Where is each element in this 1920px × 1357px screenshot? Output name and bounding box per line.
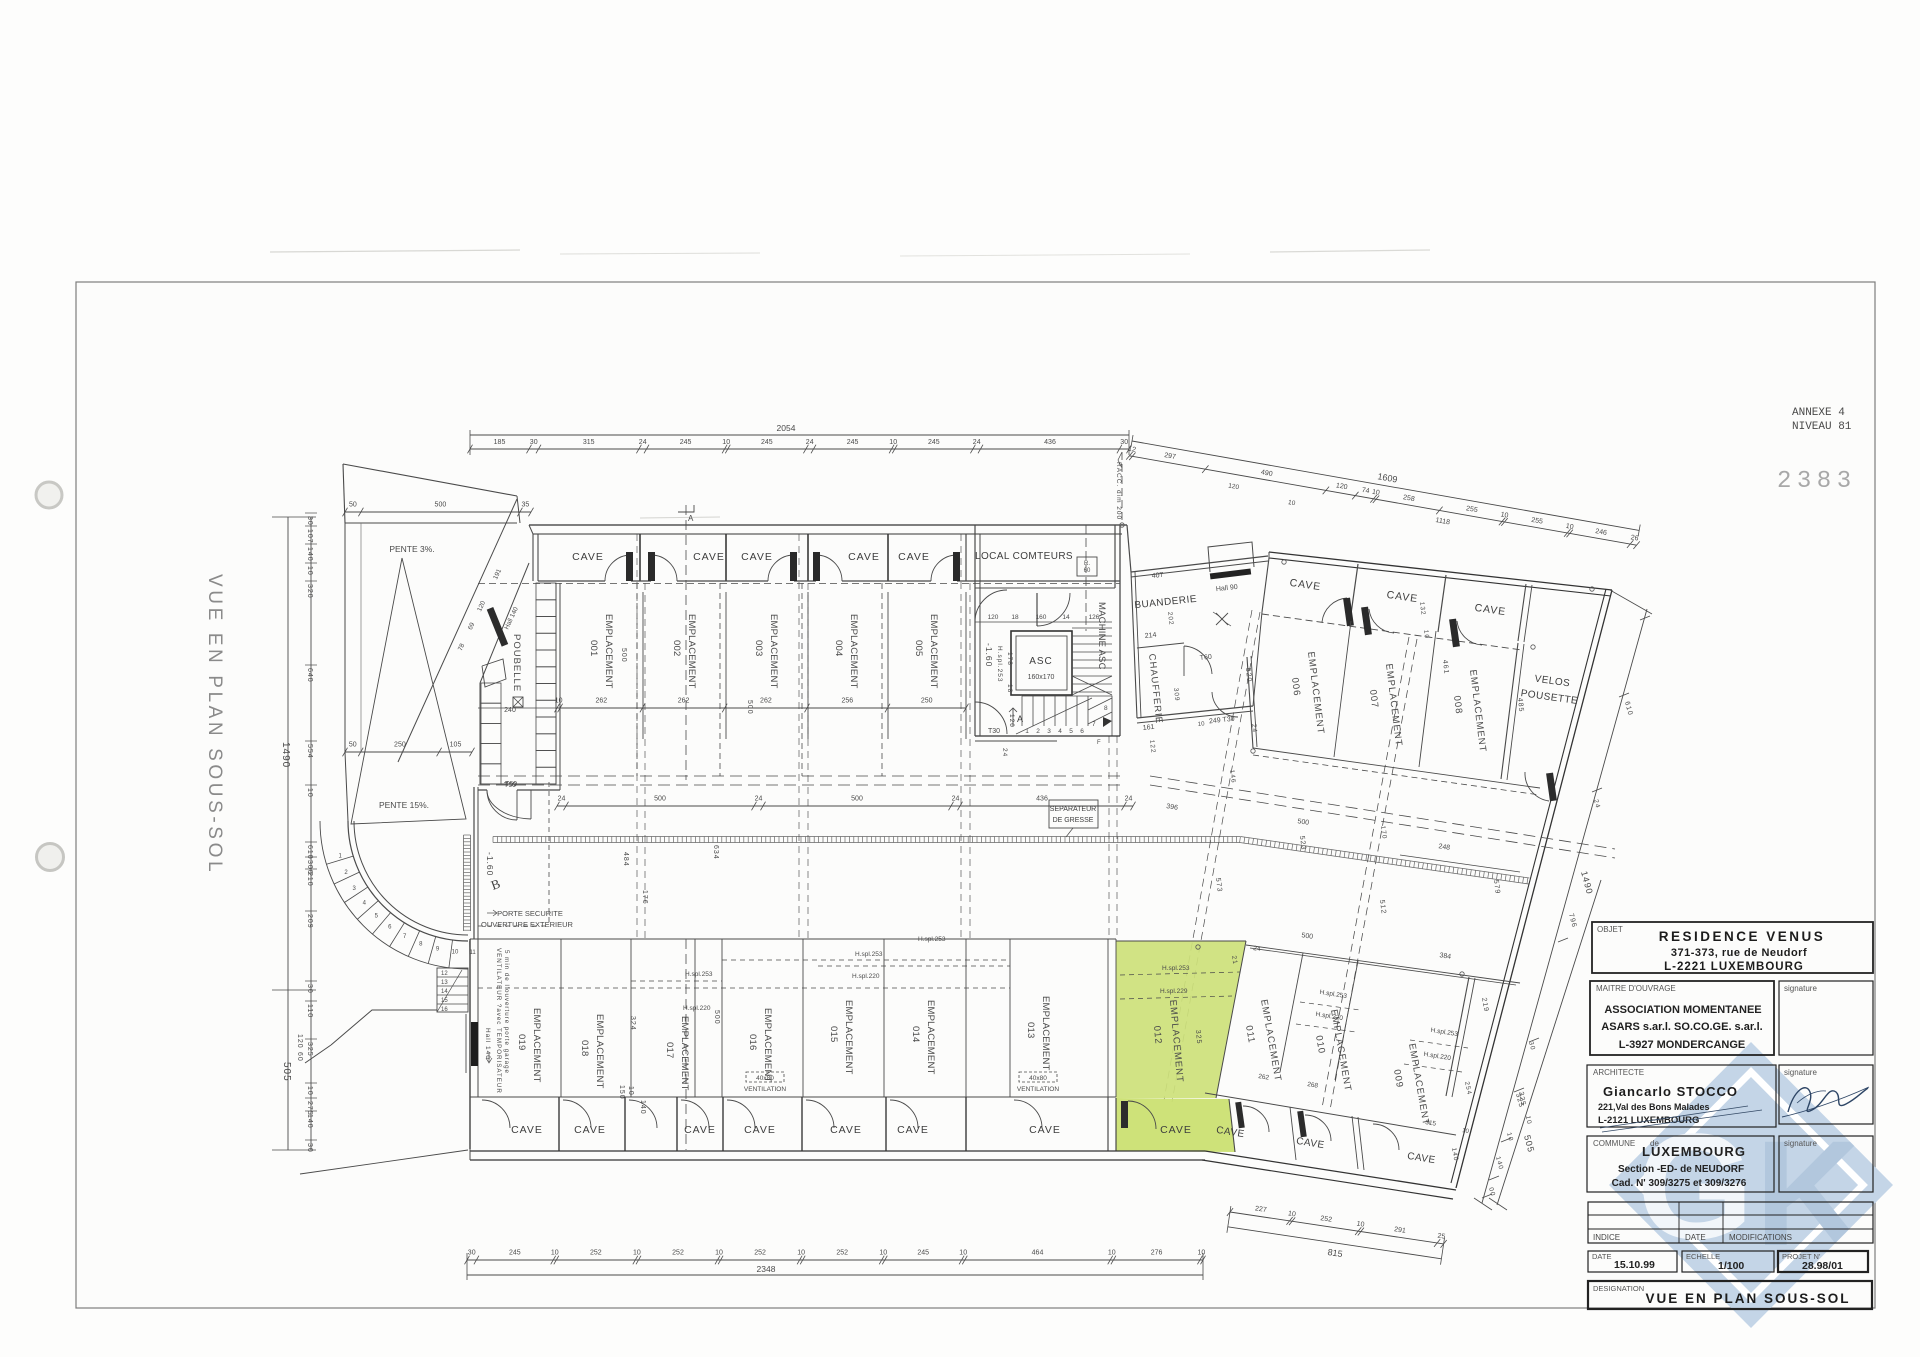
svg-text:60: 60 [296, 1052, 303, 1062]
svg-text:12: 12 [1128, 446, 1137, 454]
svg-text:NIVEAU 81: NIVEAU 81 [1792, 421, 1852, 433]
svg-text:436: 436 [1044, 439, 1056, 446]
svg-text:EMPLACEMENT: EMPLACEMENT [928, 614, 939, 689]
svg-text:10: 10 [797, 1250, 805, 1257]
svg-text:10: 10 [1422, 629, 1430, 639]
svg-text:436: 436 [1036, 796, 1048, 803]
svg-text:24: 24 [973, 439, 981, 446]
svg-text:256: 256 [841, 698, 853, 705]
svg-text:SEPARATEUR: SEPARATEUR [1050, 806, 1096, 813]
svg-text:10: 10 [627, 1086, 634, 1096]
svg-text:LUXEMBOURG: LUXEMBOURG [1642, 1144, 1746, 1159]
svg-text:EMPLACEMENT: EMPLACEMENT [925, 1000, 936, 1075]
svg-text:185: 185 [494, 439, 506, 446]
svg-text:ASARS s.ar.l. SO.CO.GE. s.ar.l: ASARS s.ar.l. SO.CO.GE. s.ar.l. [1601, 1021, 1762, 1033]
svg-text:T60: T60 [504, 782, 516, 789]
svg-text:2: 2 [1036, 728, 1040, 735]
svg-text:210: 210 [306, 872, 313, 887]
svg-text:015: 015 [828, 1026, 839, 1042]
svg-text:R.: R. [1084, 561, 1090, 567]
svg-text:H.spl.253: H.spl.253 [996, 646, 1003, 682]
svg-text:202: 202 [1166, 611, 1174, 626]
svg-text:DATE: DATE [1592, 1252, 1611, 1261]
svg-text:EMPLACEMENT: EMPLACEMENT [679, 1016, 690, 1091]
svg-text:24: 24 [806, 439, 814, 446]
svg-text:4: 4 [1058, 728, 1062, 735]
svg-text:18: 18 [1006, 684, 1013, 693]
svg-text:28.98/01: 28.98/01 [1802, 1260, 1843, 1272]
svg-text:012: 012 [1151, 1025, 1164, 1045]
svg-text:008: 008 [1451, 695, 1464, 715]
svg-text:VENTILATION: VENTILATION [744, 1086, 786, 1093]
svg-text:500: 500 [713, 1010, 720, 1025]
svg-text:signature: signature [1784, 1068, 1817, 1077]
svg-text:634: 634 [712, 845, 719, 860]
svg-text:017: 017 [664, 1042, 675, 1058]
svg-text:178: 178 [1006, 652, 1013, 666]
svg-text:CAVE: CAVE [741, 551, 773, 563]
svg-text:PORTE SECURITE: PORTE SECURITE [497, 909, 563, 918]
svg-text:505: 505 [281, 1062, 292, 1082]
svg-text:209: 209 [306, 914, 313, 929]
svg-text:10: 10 [722, 439, 730, 446]
svg-text:VENTILATION: VENTILATION [1017, 1086, 1059, 1093]
svg-text:EMPLACEMENT: EMPLACEMENT [843, 1000, 854, 1075]
svg-text:H.spl.253: H.spl.253 [1162, 965, 1190, 972]
svg-text:013: 013 [1025, 1022, 1036, 1038]
svg-text:F: F [1097, 740, 1101, 746]
svg-text:018: 018 [579, 1040, 590, 1056]
svg-text:315: 315 [583, 439, 595, 446]
svg-text:161: 161 [1142, 724, 1154, 732]
svg-text:10: 10 [1371, 489, 1380, 497]
svg-text:10: 10 [1198, 1250, 1206, 1257]
svg-text:10: 10 [1565, 523, 1574, 531]
svg-text:CAVE: CAVE [684, 1124, 716, 1136]
svg-text:CAVE: CAVE [511, 1124, 543, 1136]
svg-text:10: 10 [306, 1086, 313, 1096]
svg-text:PENTE 3%.: PENTE 3%. [389, 544, 434, 554]
svg-text:T30: T30 [988, 728, 1000, 735]
svg-text:252: 252 [590, 1250, 602, 1257]
svg-text:24: 24 [1125, 796, 1133, 803]
svg-text:3: 3 [1047, 728, 1051, 735]
svg-text:120: 120 [296, 1034, 303, 1049]
svg-text:Giancarlo STOCCO: Giancarlo STOCCO [1603, 1084, 1738, 1099]
svg-text:RESIDENCE VENUS: RESIDENCE VENUS [1659, 929, 1826, 944]
svg-text:324: 324 [629, 1016, 636, 1031]
svg-text:10: 10 [452, 949, 459, 955]
svg-text:A: A [1017, 714, 1023, 724]
svg-text:-1.60: -1.60 [984, 643, 994, 667]
svg-text:Section -ED- de NEUDORF: Section -ED- de NEUDORF [1618, 1164, 1744, 1175]
svg-text:74: 74 [1361, 487, 1370, 495]
svg-text:H.spl.229: H.spl.229 [1160, 988, 1188, 995]
svg-text:140: 140 [306, 1114, 313, 1129]
svg-text:H.spl.253: H.spl.253 [685, 971, 713, 978]
svg-text:1/100: 1/100 [1718, 1260, 1744, 1272]
svg-text:245: 245 [917, 1250, 929, 1257]
svg-text:24: 24 [1001, 748, 1008, 757]
svg-text:640: 640 [306, 668, 313, 683]
svg-text:12: 12 [441, 971, 448, 977]
svg-text:24: 24 [952, 796, 960, 803]
svg-text:2348: 2348 [757, 1264, 776, 1274]
svg-text:CAVE: CAVE [1160, 1124, 1192, 1136]
svg-text:60: 60 [1084, 568, 1091, 574]
svg-text:10: 10 [1108, 1250, 1116, 1257]
svg-text:13: 13 [441, 980, 448, 986]
svg-text:16: 16 [441, 1007, 448, 1013]
svg-text:10: 10 [1287, 1210, 1296, 1218]
svg-text:A: A [688, 514, 694, 523]
svg-text:10: 10 [889, 439, 897, 446]
svg-text:CAVE: CAVE [848, 551, 880, 563]
svg-text:10: 10 [879, 1250, 887, 1257]
svg-text:INDICE: INDICE [1593, 1233, 1620, 1242]
svg-text:L-3927 MONDERCANGE: L-3927 MONDERCANGE [1619, 1039, 1746, 1051]
svg-text:VENTILATEUR ?avec TEMPORISATEU: VENTILATEUR ?avec TEMPORISATEUR [495, 948, 502, 1094]
svg-text:ASC: ASC [1029, 656, 1053, 667]
svg-text:320: 320 [306, 584, 313, 599]
svg-text:Cad. N' 309/3275 et 309/3276: Cad. N' 309/3275 et 309/3276 [1612, 1178, 1747, 1189]
svg-text:003: 003 [753, 640, 764, 656]
svg-text:252: 252 [836, 1250, 848, 1257]
svg-text:6: 6 [1080, 728, 1084, 735]
svg-text:ASSOCIATION MOMENTANEE: ASSOCIATION MOMENTANEE [1604, 1004, 1761, 1016]
svg-text:Hall 140: Hall 140 [484, 1028, 491, 1060]
svg-text:1490: 1490 [280, 742, 291, 768]
svg-text:245: 245 [761, 439, 773, 446]
svg-text:30: 30 [1120, 439, 1128, 446]
svg-text:245: 245 [680, 439, 692, 446]
svg-text:016: 016 [747, 1034, 758, 1050]
svg-text:H.spl.253: H.spl.253 [918, 936, 946, 943]
svg-text:18: 18 [1011, 614, 1019, 621]
svg-text:EMPLACEMENT: EMPLACEMENT [531, 1008, 542, 1083]
svg-text:500: 500 [435, 502, 447, 509]
svg-text:8: 8 [1104, 705, 1108, 712]
svg-text:EMPLACEMENT: EMPLACEMENT [768, 614, 779, 689]
svg-text:500: 500 [620, 648, 627, 663]
svg-text:CAVE: CAVE [693, 551, 725, 563]
svg-text:40x80: 40x80 [1029, 1075, 1047, 1082]
svg-text:004: 004 [833, 640, 844, 656]
svg-text:LOCAL COMTEURS: LOCAL COMTEURS [975, 551, 1073, 562]
svg-text:H.spl.220: H.spl.220 [852, 973, 880, 980]
svg-text:214: 214 [1144, 632, 1156, 640]
svg-text:-1.60: -1.60 [485, 852, 495, 876]
svg-text:15.10.99: 15.10.99 [1614, 1259, 1655, 1271]
svg-text:DATE: DATE [1685, 1233, 1706, 1242]
svg-text:126: 126 [1089, 614, 1100, 621]
svg-text:COMMUNE: COMMUNE [1593, 1139, 1635, 1148]
svg-text:CAVE: CAVE [898, 551, 930, 563]
svg-text:002: 002 [671, 640, 682, 656]
svg-text:30: 30 [306, 1143, 313, 1153]
svg-text:PENTE 15%.: PENTE 15%. [379, 800, 429, 810]
svg-text:H.spl.253: H.spl.253 [855, 951, 883, 958]
svg-text:500: 500 [851, 796, 863, 803]
svg-text:10: 10 [306, 788, 313, 798]
svg-text:325: 325 [1194, 1030, 1202, 1045]
svg-text:50: 50 [349, 502, 357, 509]
svg-text:610: 610 [306, 845, 313, 860]
svg-text:120: 120 [988, 614, 999, 621]
svg-text:122: 122 [1148, 739, 1156, 754]
svg-text:10: 10 [633, 1250, 641, 1257]
svg-text:464: 464 [1032, 1250, 1044, 1257]
svg-text:105: 105 [450, 742, 462, 749]
svg-text:POUBELLE: POUBELLE [511, 634, 522, 692]
svg-text:2383: 2383 [1777, 468, 1857, 495]
svg-text:30: 30 [306, 984, 313, 994]
svg-text:132: 132 [1418, 601, 1426, 616]
svg-text:407: 407 [1151, 572, 1163, 580]
svg-text:484: 484 [622, 852, 629, 867]
svg-text:10: 10 [715, 1250, 723, 1257]
svg-text:500: 500 [654, 796, 666, 803]
svg-text:176: 176 [641, 890, 648, 905]
svg-text:CAVE: CAVE [1029, 1124, 1061, 1136]
svg-text:371-373, rue de Neudorf: 371-373, rue de Neudorf [1671, 947, 1807, 959]
svg-text:005: 005 [913, 640, 924, 656]
svg-text:30: 30 [530, 439, 538, 446]
svg-text:EMPLACEMENT: EMPLACEMENT [686, 614, 697, 689]
svg-text:262: 262 [595, 698, 607, 705]
svg-text:ECHELLE: ECHELLE [1686, 1252, 1720, 1261]
svg-text:EMPLACEMENT: EMPLACEMENT [594, 1014, 605, 1089]
svg-text:10: 10 [306, 566, 313, 576]
svg-text:252: 252 [672, 1250, 684, 1257]
svg-text:CAVE: CAVE [897, 1124, 929, 1136]
svg-text:CAVE: CAVE [572, 551, 604, 563]
svg-text:CAVE: CAVE [744, 1124, 776, 1136]
svg-text:245: 245 [509, 1250, 521, 1257]
svg-text:VUE EN PLAN SOUS-SOL: VUE EN PLAN SOUS-SOL [204, 574, 225, 875]
svg-text:10: 10 [1500, 511, 1509, 519]
svg-text:L-2221 LUXEMBOURG: L-2221 LUXEMBOURG [1664, 961, 1804, 973]
svg-text:001: 001 [588, 640, 599, 656]
svg-text:10: 10 [551, 1250, 559, 1257]
svg-text:10: 10 [1198, 721, 1206, 728]
svg-text:7: 7 [1092, 721, 1096, 728]
svg-text:140: 140 [306, 547, 313, 562]
svg-text:24: 24 [558, 796, 566, 803]
svg-text:H.spl.220: H.spl.220 [683, 1005, 711, 1012]
svg-text:DE GRESSE: DE GRESSE [1053, 817, 1094, 824]
svg-text:10: 10 [555, 698, 563, 705]
svg-text:006: 006 [1289, 677, 1302, 697]
svg-text:160x170: 160x170 [1028, 674, 1055, 681]
svg-text:OUVERTURE EXTERIEUR: OUVERTURE EXTERIEUR [481, 920, 574, 929]
svg-text:5 min de l'ouverture porte gar: 5 min de l'ouverture porte garage [503, 950, 510, 1074]
svg-text:325: 325 [306, 1042, 313, 1057]
svg-text:24: 24 [755, 796, 763, 803]
svg-text:ANNEXE 4: ANNEXE 4 [1792, 407, 1845, 419]
svg-text:2054: 2054 [777, 423, 796, 433]
svg-text:T60: T60 [1199, 654, 1212, 662]
svg-text:019: 019 [516, 1034, 527, 1050]
svg-text:30: 30 [468, 1250, 476, 1257]
svg-text:262: 262 [760, 698, 772, 705]
svg-text:EMPLACEMENT: EMPLACEMENT [762, 1008, 773, 1083]
svg-text:VUE EN PLAN SOUS-SOL: VUE EN PLAN SOUS-SOL [1645, 1291, 1850, 1306]
svg-text:014: 014 [910, 1026, 921, 1042]
svg-text:107: 107 [306, 529, 313, 544]
svg-text:ARCHITECTE: ARCHITECTE [1593, 1068, 1644, 1077]
svg-text:276: 276 [1151, 1250, 1163, 1257]
svg-text:10: 10 [959, 1250, 967, 1257]
svg-text:signature: signature [1784, 1139, 1817, 1148]
svg-text:252: 252 [754, 1250, 766, 1257]
svg-text:CAVE: CAVE [830, 1124, 862, 1136]
svg-text:221,Val des Bons Malades: 221,Val des Bons Malades [1598, 1102, 1710, 1112]
svg-text:EMPLACEMENT: EMPLACEMENT [848, 614, 859, 689]
svg-text:30: 30 [306, 516, 313, 526]
svg-text:signature: signature [1784, 984, 1817, 993]
svg-text:007: 007 [1367, 689, 1380, 709]
svg-text:50: 50 [349, 742, 357, 749]
svg-text:CAVE: CAVE [574, 1124, 606, 1136]
svg-text:250: 250 [921, 698, 933, 705]
svg-text:OBJET: OBJET [1597, 925, 1623, 934]
svg-text:309: 309 [1172, 687, 1180, 702]
svg-text:554: 554 [306, 744, 313, 759]
svg-text:10: 10 [1356, 1221, 1365, 1229]
svg-text:262: 262 [678, 698, 690, 705]
svg-text:26: 26 [1630, 534, 1639, 542]
svg-text:24: 24 [639, 439, 647, 446]
svg-text:EMPLACEMENT: EMPLACEMENT [1040, 996, 1051, 1071]
svg-text:14: 14 [1062, 614, 1070, 621]
svg-text:500: 500 [746, 700, 753, 715]
svg-text:245: 245 [928, 439, 940, 446]
svg-text:110: 110 [306, 1004, 313, 1018]
svg-text:245: 245 [847, 439, 859, 446]
svg-text:40x80: 40x80 [756, 1075, 774, 1082]
svg-text:5: 5 [1069, 728, 1073, 735]
svg-text:MODIFICATIONS: MODIFICATIONS [1729, 1233, 1792, 1242]
svg-text:MAITRE D'OUVRAGE: MAITRE D'OUVRAGE [1596, 984, 1676, 993]
svg-text:35: 35 [522, 502, 530, 509]
svg-text:RACC. dim 200: RACC. dim 200 [1115, 462, 1122, 520]
svg-text:MACHINE ASC: MACHINE ASC [1096, 602, 1107, 670]
svg-text:EMPLACEMENT: EMPLACEMENT [603, 614, 614, 689]
svg-text:DESIGNATION: DESIGNATION [1593, 1284, 1644, 1293]
svg-text:120: 120 [1008, 714, 1015, 728]
svg-text:14: 14 [441, 989, 448, 995]
